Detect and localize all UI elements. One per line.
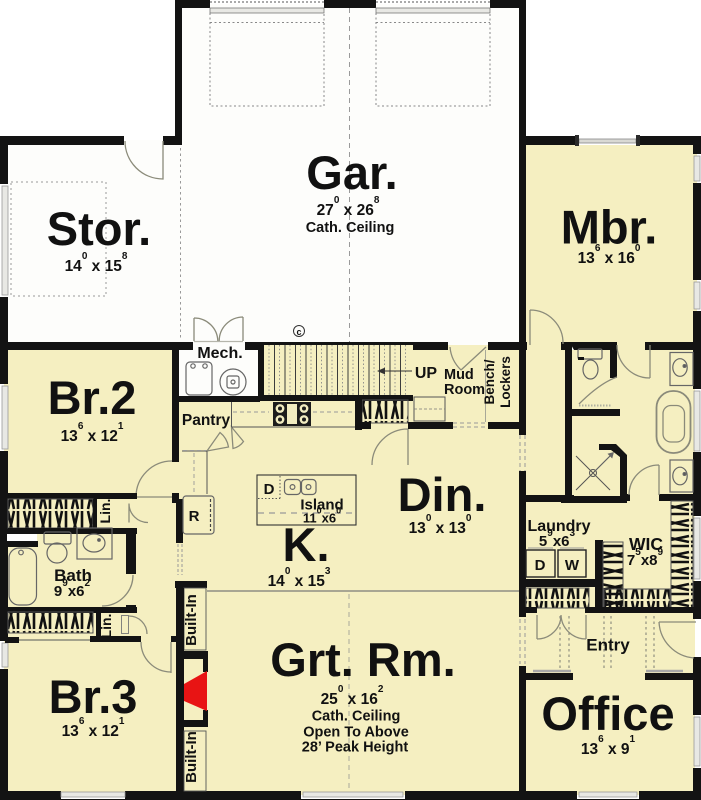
svg-text:Office: Office xyxy=(541,687,674,740)
svg-text:Pantry: Pantry xyxy=(182,412,231,429)
svg-text:R: R xyxy=(189,508,200,525)
svg-text:Mud: Mud xyxy=(444,367,474,383)
svg-text:D: D xyxy=(535,557,546,574)
svg-text:UP: UP xyxy=(415,365,438,382)
svg-text:Cath. Ceiling: Cath. Ceiling xyxy=(312,709,401,725)
svg-text:Room: Room xyxy=(444,382,485,398)
svg-text:Lockers: Lockers xyxy=(498,356,513,408)
svg-text:Lin.: Lin. xyxy=(97,499,113,524)
svg-text:Br.2: Br.2 xyxy=(48,371,137,424)
svg-text:Grt. Rm.: Grt. Rm. xyxy=(270,633,455,686)
svg-text:Gar.: Gar. xyxy=(306,146,397,199)
svg-text:Stor.: Stor. xyxy=(47,202,151,255)
svg-text:Built-In: Built-In xyxy=(183,594,200,646)
svg-text:Cath. Ceiling: Cath. Ceiling xyxy=(306,220,395,236)
svg-text:Bench/: Bench/ xyxy=(482,359,497,404)
svg-text:Entry: Entry xyxy=(586,636,630,655)
svg-text:K.: K. xyxy=(283,518,330,571)
svg-text:Mbr.: Mbr. xyxy=(561,201,658,254)
svg-text:D: D xyxy=(264,481,275,498)
svg-text:Lin.: Lin. xyxy=(98,614,114,639)
svg-text:Built-In: Built-In xyxy=(183,731,200,783)
svg-text:W: W xyxy=(565,557,580,574)
svg-text:Mech.: Mech. xyxy=(197,345,242,362)
svg-text:Din.: Din. xyxy=(398,468,487,521)
svg-text:28’ Peak Height: 28’ Peak Height xyxy=(302,740,409,756)
svg-text:Open To Above: Open To Above xyxy=(303,725,409,741)
svg-text:c: c xyxy=(296,327,301,337)
